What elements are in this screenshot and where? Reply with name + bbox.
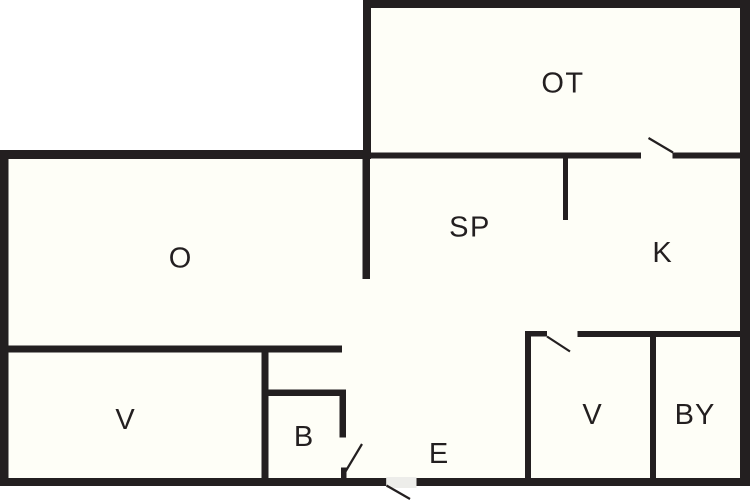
- svg-text:B: B: [294, 421, 313, 453]
- svg-text:E: E: [429, 438, 448, 470]
- svg-text:V: V: [582, 399, 602, 431]
- svg-text:OT: OT: [541, 68, 584, 100]
- svg-text:K: K: [652, 237, 672, 269]
- svg-text:BY: BY: [675, 399, 716, 431]
- svg-text:O: O: [169, 243, 192, 275]
- svg-text:V: V: [115, 404, 135, 436]
- svg-text:SP: SP: [449, 212, 491, 244]
